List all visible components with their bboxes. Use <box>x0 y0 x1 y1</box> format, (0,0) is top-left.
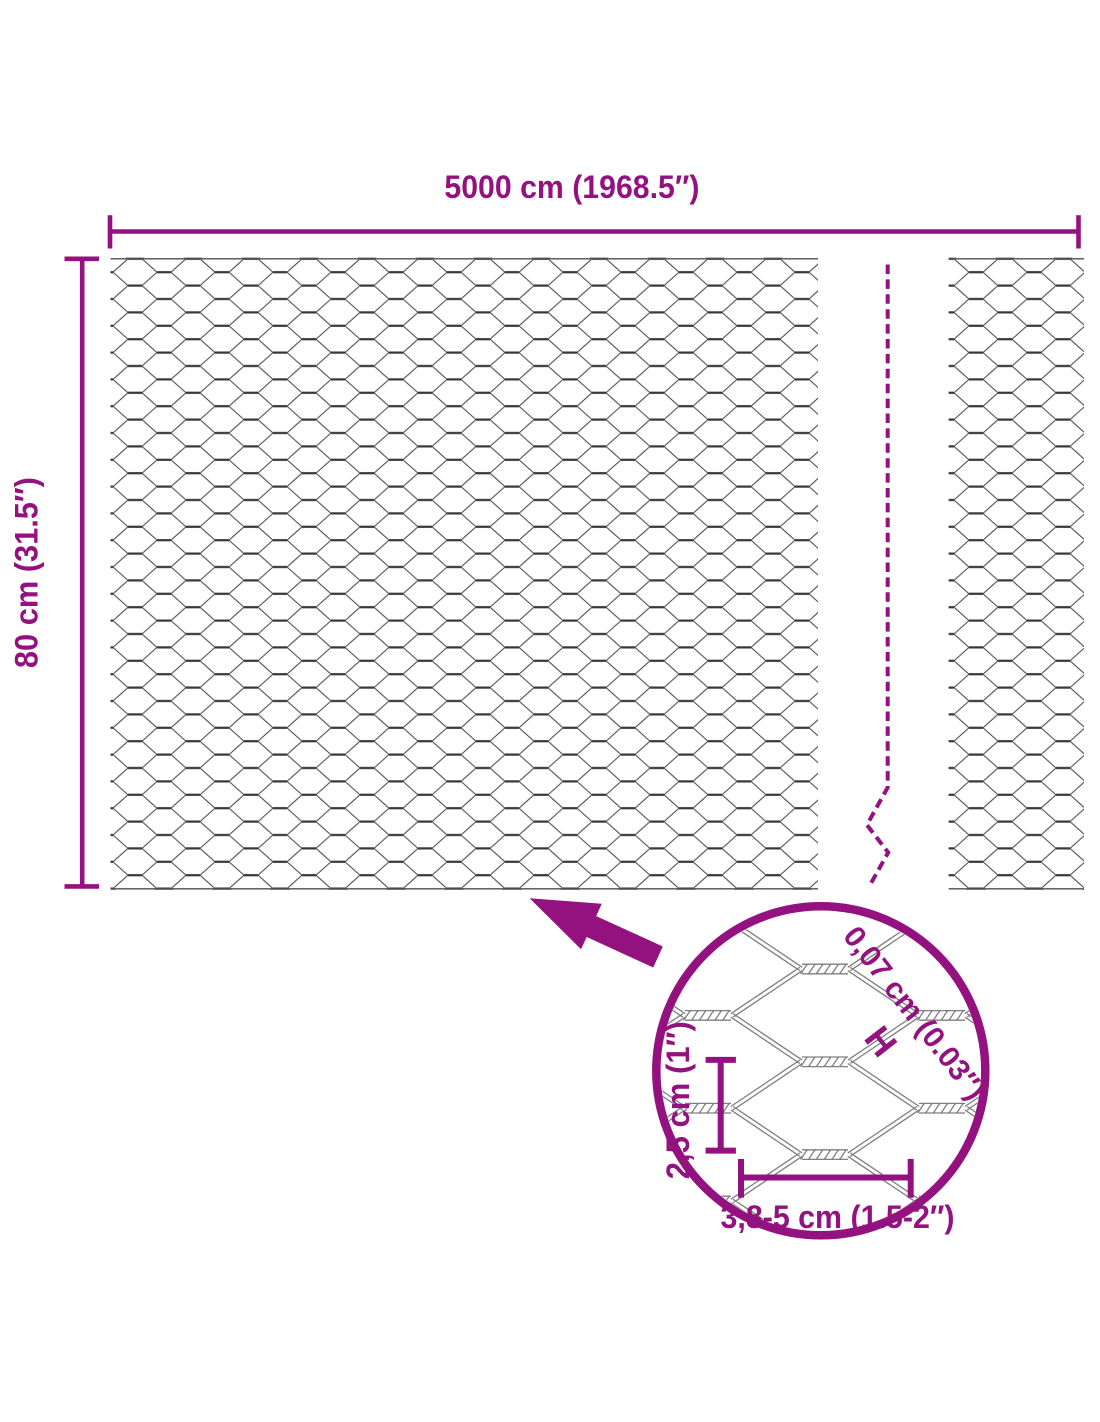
svg-text:80 cm (31.5″): 80 cm (31.5″) <box>8 477 44 668</box>
svg-text:3,8-5 cm (1.5-2″): 3,8-5 cm (1.5-2″) <box>721 1199 955 1235</box>
svg-text:5000 cm (1968.5″): 5000 cm (1968.5″) <box>444 169 699 205</box>
svg-text:2,5 cm (1″): 2,5 cm (1″) <box>660 1021 696 1179</box>
